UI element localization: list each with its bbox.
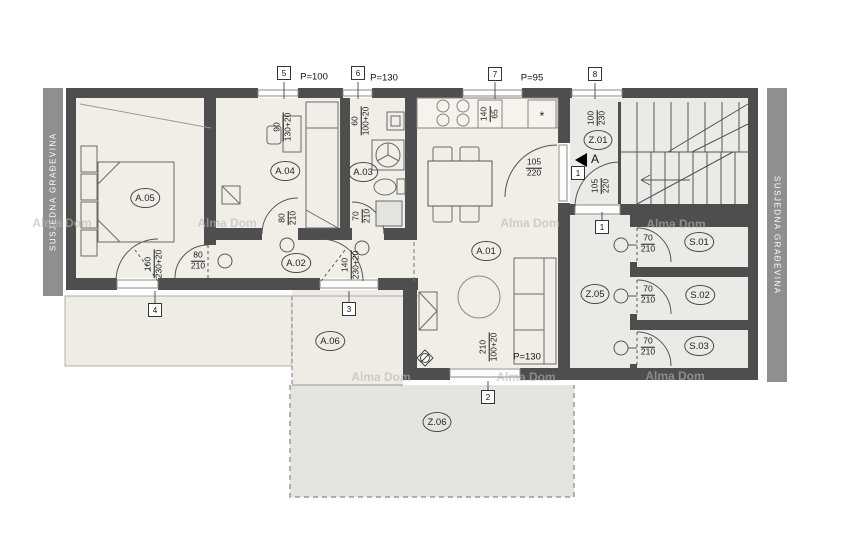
neighbor-label-right: SUSJEDNA GRAĐEVINA [773,176,782,295]
section-letter: A [591,152,599,166]
dim-a04-door: 80210 [278,211,299,225]
dim-a03-window: 60100+20 [351,107,372,136]
room-label-z01: Z.01 [583,130,612,150]
watermark: Alma Dom [646,217,705,231]
fridge-symbol: * [540,109,545,123]
marker-8: 8 [588,67,602,81]
marker-7: 7 [488,67,502,81]
marker-1b: 1 [595,220,609,234]
room-label-a06: A.06 [315,331,345,351]
room-label-a02: A.02 [281,253,311,273]
dim-s03-door: 70210 [641,337,655,358]
room-label-z06: Z.06 [422,412,451,432]
watermark: Alma Dom [500,216,559,230]
parapet-p130-top: P=130 [370,73,398,84]
marker-5: 5 [277,66,291,80]
dim-s01-door: 70210 [641,234,655,255]
watermark: Alma Dom [351,370,410,384]
parapet-p100: P=100 [300,72,328,83]
dim-a03-door: 70210 [352,209,373,223]
watermark: Alma Dom [197,216,256,230]
sofa [514,258,556,364]
neighbor-bar-left: SUSJEDNA GRAĐEVINA [43,88,63,296]
dim-z01-window: 100230 [587,110,608,126]
floorplan-graphics [0,0,863,538]
neighbor-label-left: SUSJEDNA GRAĐEVINA [49,133,58,252]
dim-a01-window: 210100+20 [479,333,500,362]
room-label-a05: A.05 [130,188,160,208]
marker-3: 3 [342,302,356,316]
room-label-z05: Z.05 [580,284,609,304]
marker-1a: 1 [571,166,585,180]
marker-4: 4 [148,303,162,317]
marker-2: 2 [481,390,495,404]
floor-plan: SUSJEDNA GRAĐEVINA SUSJEDNA GRAĐEVINA Al… [0,0,863,538]
dim-kitchen-unit: 14065 [480,106,501,122]
dim-a05-door: 80210 [191,251,205,272]
parapet-p130-bottom: P=130 [513,352,541,363]
parapet-p95: P=95 [521,73,543,84]
watermark: Alma Dom [645,369,704,383]
terrace-strip [65,296,292,366]
marker-6: 6 [351,66,365,80]
room-label-a04: A.04 [270,161,300,181]
neighbor-bar-right: SUSJEDNA GRAĐEVINA [767,88,787,382]
watermark: Alma Dom [496,370,555,384]
dim-entry-door: 105220 [526,158,542,179]
dim-z01-door: 105220 [591,178,612,194]
room-label-a01: A.01 [471,241,501,261]
room-label-s01: S.01 [684,232,714,252]
room-label-s02: S.02 [685,285,715,305]
room-label-s03: S.03 [684,336,714,356]
room-label-a03: A.03 [348,162,378,182]
dim-s02-door: 70210 [641,285,655,306]
dim-a05-balcony: 160230+20 [144,250,165,279]
terrace-z06 [290,385,574,497]
dim-a02-balcony: 140230+20 [341,251,362,280]
dim-a04-window: 90130+20 [273,113,294,142]
watermark: Alma Dom [32,216,91,230]
